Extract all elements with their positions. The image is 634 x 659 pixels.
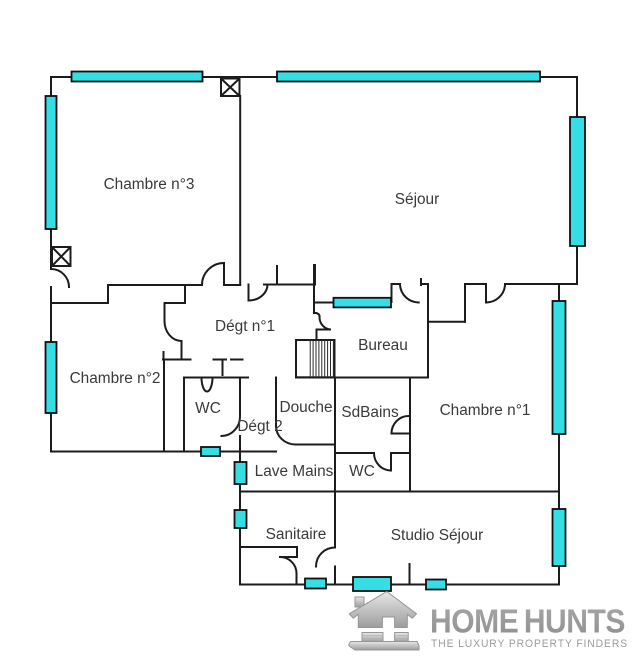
svg-text:Chambre n°2: Chambre n°2: [70, 370, 161, 387]
svg-text:Douche: Douche: [279, 399, 332, 416]
svg-text:Chambre n°3: Chambre n°3: [104, 176, 195, 193]
svg-text:Dégt 2: Dégt 2: [237, 418, 282, 435]
svg-text:Chambre n°1: Chambre n°1: [440, 402, 531, 419]
svg-text:Sanitaire: Sanitaire: [266, 526, 327, 543]
svg-text:Bureau: Bureau: [358, 337, 408, 354]
svg-text:Lave Mains: Lave Mains: [255, 463, 334, 480]
svg-text:Studio Séjour: Studio Séjour: [391, 527, 483, 544]
svg-text:HOME HUNTS: HOME HUNTS: [430, 603, 625, 640]
svg-text:SdBains: SdBains: [341, 404, 399, 421]
svg-text:THE LUXURY PROPERTY FINDERS: THE LUXURY PROPERTY FINDERS: [431, 638, 628, 650]
svg-text:Séjour: Séjour: [395, 191, 440, 208]
svg-text:Dégt n°1: Dégt n°1: [215, 318, 275, 335]
svg-text:WC: WC: [349, 463, 375, 480]
svg-text:WC: WC: [195, 400, 221, 417]
